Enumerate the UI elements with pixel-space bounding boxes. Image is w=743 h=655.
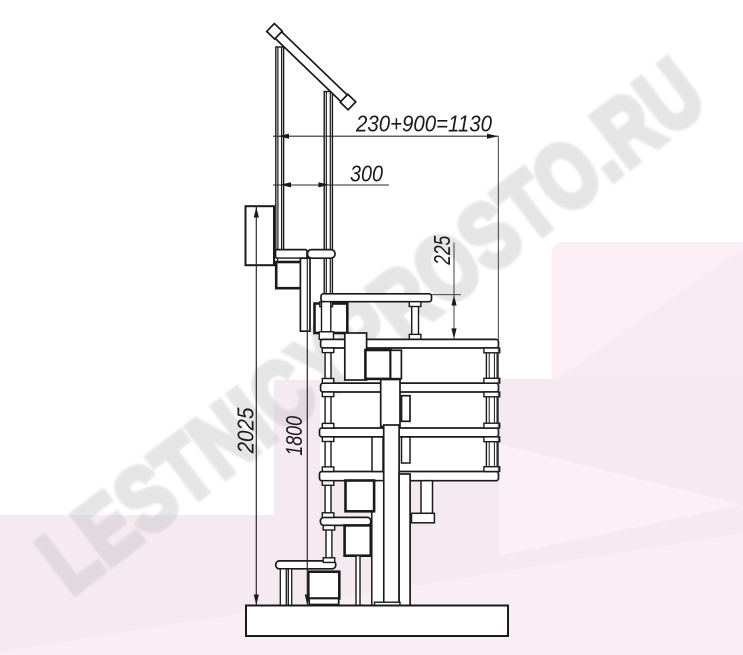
svg-text:300: 300 [350,161,383,187]
svg-text:1800: 1800 [281,416,307,456]
svg-text:2025: 2025 [232,407,258,454]
svg-text:225: 225 [429,235,455,265]
svg-text:230+900=1130: 230+900=1130 [355,111,492,137]
